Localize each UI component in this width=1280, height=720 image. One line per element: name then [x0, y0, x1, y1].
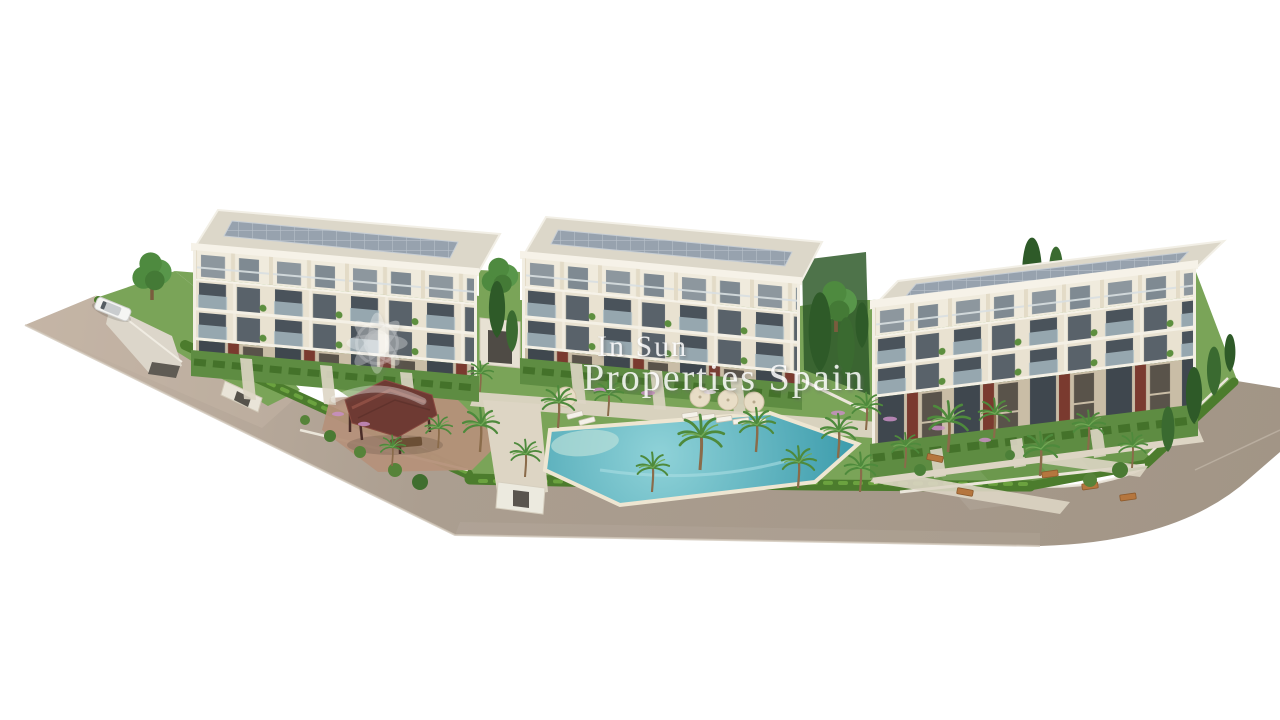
- pool-area-gate: [496, 482, 545, 514]
- architectural-render-stage: In Sun Properties Spain: [0, 0, 1280, 720]
- courtyard-gap-1: [479, 258, 520, 372]
- site-plan-render: [0, 0, 1280, 720]
